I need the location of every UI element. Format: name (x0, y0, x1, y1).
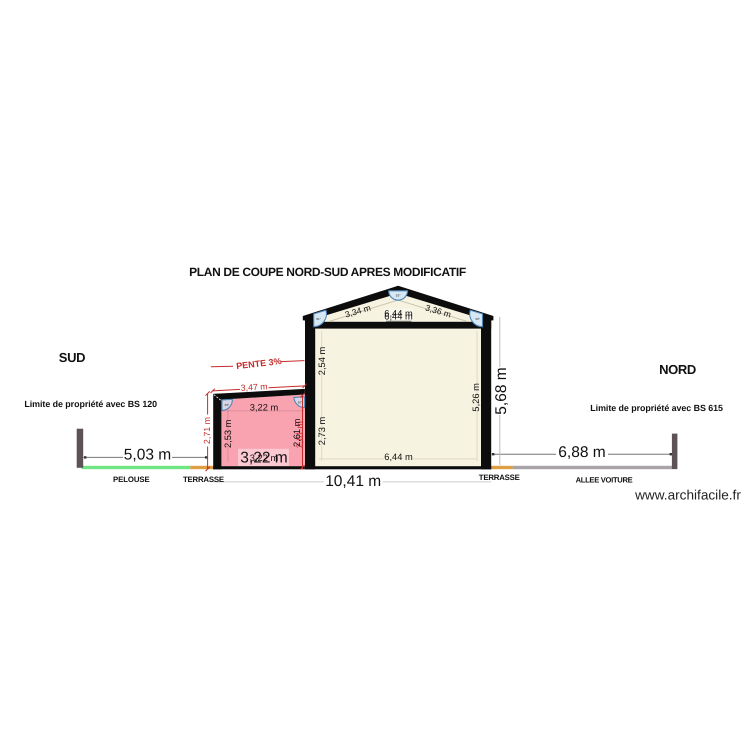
svg-text:Limite de propriété avec BS 61: Limite de propriété avec BS 615 (590, 403, 723, 413)
svg-text:NORD: NORD (659, 362, 696, 377)
svg-text:99°: 99° (475, 317, 480, 321)
svg-text:2,53 m: 2,53 m (223, 419, 233, 448)
svg-text:81°: 81° (316, 317, 321, 321)
svg-text:5,03 m: 5,03 m (124, 446, 171, 463)
svg-text:2,61 m: 2,61 m (292, 418, 302, 447)
svg-text:6,44 m: 6,44 m (384, 452, 413, 462)
svg-text:16°: 16° (396, 294, 402, 298)
svg-text:3,22 m: 3,22 m (240, 450, 287, 467)
svg-text:PLAN DE COUPE NORD-SUD APRES M: PLAN DE COUPE NORD-SUD APRES MODIFICATIF (189, 265, 466, 279)
svg-text:TERRASSE: TERRASSE (183, 475, 224, 484)
svg-text:5,68 m: 5,68 m (493, 367, 510, 414)
svg-text:2,54 m: 2,54 m (317, 347, 327, 376)
svg-text:6,44 m: 6,44 m (384, 311, 413, 321)
svg-text:2,73 m: 2,73 m (317, 417, 327, 446)
svg-text:www.archifacile.fr: www.archifacile.fr (634, 488, 741, 503)
svg-text:10,41 m: 10,41 m (325, 473, 381, 490)
svg-text:SUD: SUD (59, 350, 86, 365)
svg-text:ALLEE VOITURE: ALLEE VOITURE (576, 476, 633, 485)
svg-text:93°: 93° (225, 403, 230, 407)
svg-text:2,71 m: 2,71 m (202, 417, 212, 444)
svg-text:PELOUSE: PELOUSE (113, 475, 150, 484)
svg-text:Limite de propriété avec BS 12: Limite de propriété avec BS 120 (24, 399, 157, 409)
svg-text:6,88 m: 6,88 m (558, 444, 605, 461)
svg-text:TERRASSE: TERRASSE (479, 473, 520, 482)
svg-text:3,22 m: 3,22 m (250, 403, 279, 413)
svg-text:3,47 m: 3,47 m (240, 381, 267, 392)
svg-text:5,26 m: 5,26 m (471, 383, 481, 412)
